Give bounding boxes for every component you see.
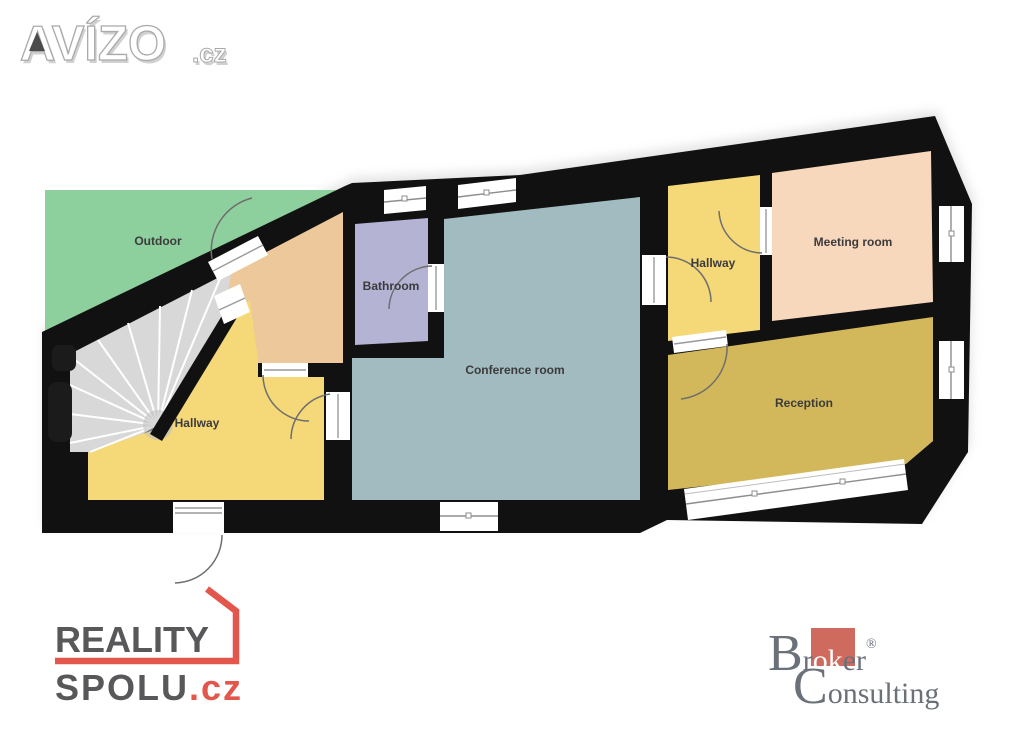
- door-arc-entrance: [175, 535, 222, 583]
- door-gap-entrance: [173, 502, 224, 533]
- room-label-meeting: Meeting room: [814, 235, 893, 249]
- reality-word-text: REALITY: [55, 619, 209, 660]
- wall-pilaster-top: [52, 345, 76, 371]
- broker-seg-onsulting: onsulting: [828, 662, 940, 726]
- reality-word: REALITY: [55, 619, 209, 661]
- room-label-hallway-right: Hallway: [691, 256, 736, 270]
- room-label-conference: Conference room: [465, 363, 564, 377]
- room-label-outdoor: Outdoor: [134, 234, 182, 248]
- spolu-word-text: SPOLU: [55, 667, 189, 708]
- spolu-tld-text: .cz: [189, 667, 243, 708]
- spolu-word: SPOLU.cz: [55, 667, 243, 709]
- broker-line2: Consulting: [793, 655, 939, 719]
- broker-consulting-logo: Broker® Consulting: [762, 622, 1002, 722]
- room-label-reception: Reception: [775, 396, 833, 410]
- reality-spolu-logo: REALITY SPOLU.cz: [50, 583, 290, 713]
- wall-pilaster-bottom: [48, 382, 72, 442]
- room-label-bathroom: Bathroom: [363, 279, 420, 293]
- room-label-hallway-left: Hallway: [175, 416, 220, 430]
- broker-cap-c: C: [793, 655, 828, 719]
